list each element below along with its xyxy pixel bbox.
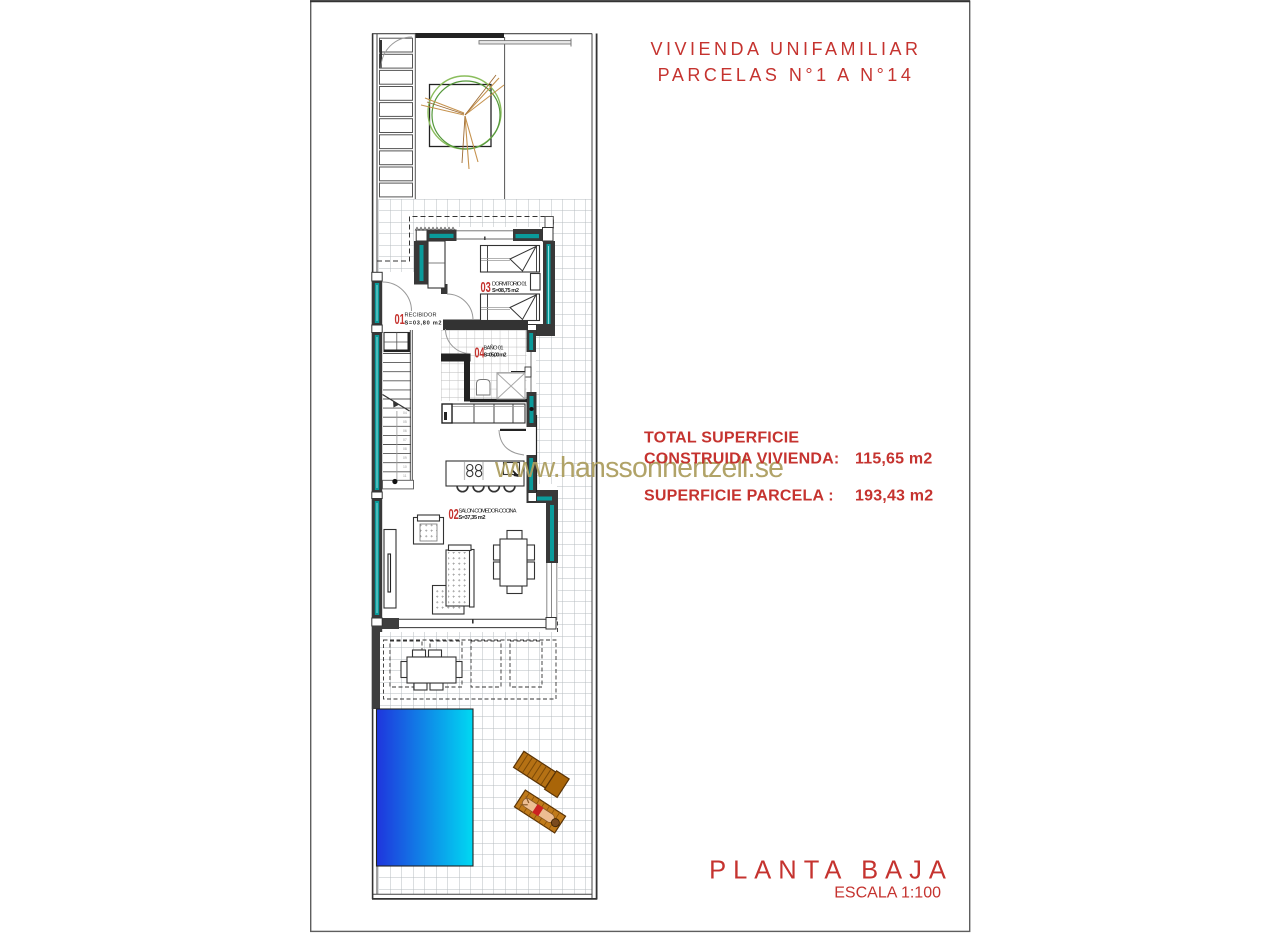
svg-text:06: 06 [403,429,407,433]
svg-text:DORMITORIO 01: DORMITORIO 01 [492,282,527,288]
svg-text:TOTAL SUPERFICIE: TOTAL SUPERFICIE [644,430,799,447]
svg-text:S=05,00 m2: S=05,00 m2 [484,353,507,359]
svg-text:01: 01 [395,311,405,328]
svg-text:04: 04 [403,411,407,415]
svg-text:09: 09 [403,456,407,460]
svg-text:ESCALA 1:100: ESCALA 1:100 [834,885,941,902]
svg-text:115,65 m2: 115,65 m2 [855,451,932,468]
svg-text:11: 11 [403,474,407,478]
svg-text:S=03,80 m2: S=03,80 m2 [405,321,442,327]
svg-text:SALON-COMEDOR-COCINA: SALON-COMEDOR-COCINA [459,509,517,515]
svg-text:10: 10 [403,465,407,469]
svg-text:PARCELAS N°1 A N°14: PARCELAS N°1 A N°14 [658,65,915,85]
svg-text:07: 07 [403,438,407,442]
svg-text:RECIBIDOR: RECIBIDOR [405,313,437,319]
svg-text:193,43 m2: 193,43 m2 [855,488,933,505]
svg-text:SUPERFICIE PARCELA :: SUPERFICIE PARCELA : [644,488,834,505]
svg-text:VIVIENDA UNIFAMILIAR: VIVIENDA UNIFAMILIAR [650,39,921,59]
svg-text:BAÑO 01: BAÑO 01 [484,345,504,352]
svg-text:05: 05 [403,420,407,424]
svg-text:S=08,75 m2: S=08,75 m2 [492,288,519,294]
svg-text:CONSTRUIDA VIVIENDA:: CONSTRUIDA VIVIENDA: [644,451,839,468]
svg-text:03: 03 [481,279,491,296]
svg-text:PLANTA BAJA: PLANTA BAJA [709,857,953,885]
svg-text:08: 08 [403,447,407,451]
svg-text:S=37,35 m2: S=37,35 m2 [459,515,486,521]
svg-text:02: 02 [449,506,459,523]
